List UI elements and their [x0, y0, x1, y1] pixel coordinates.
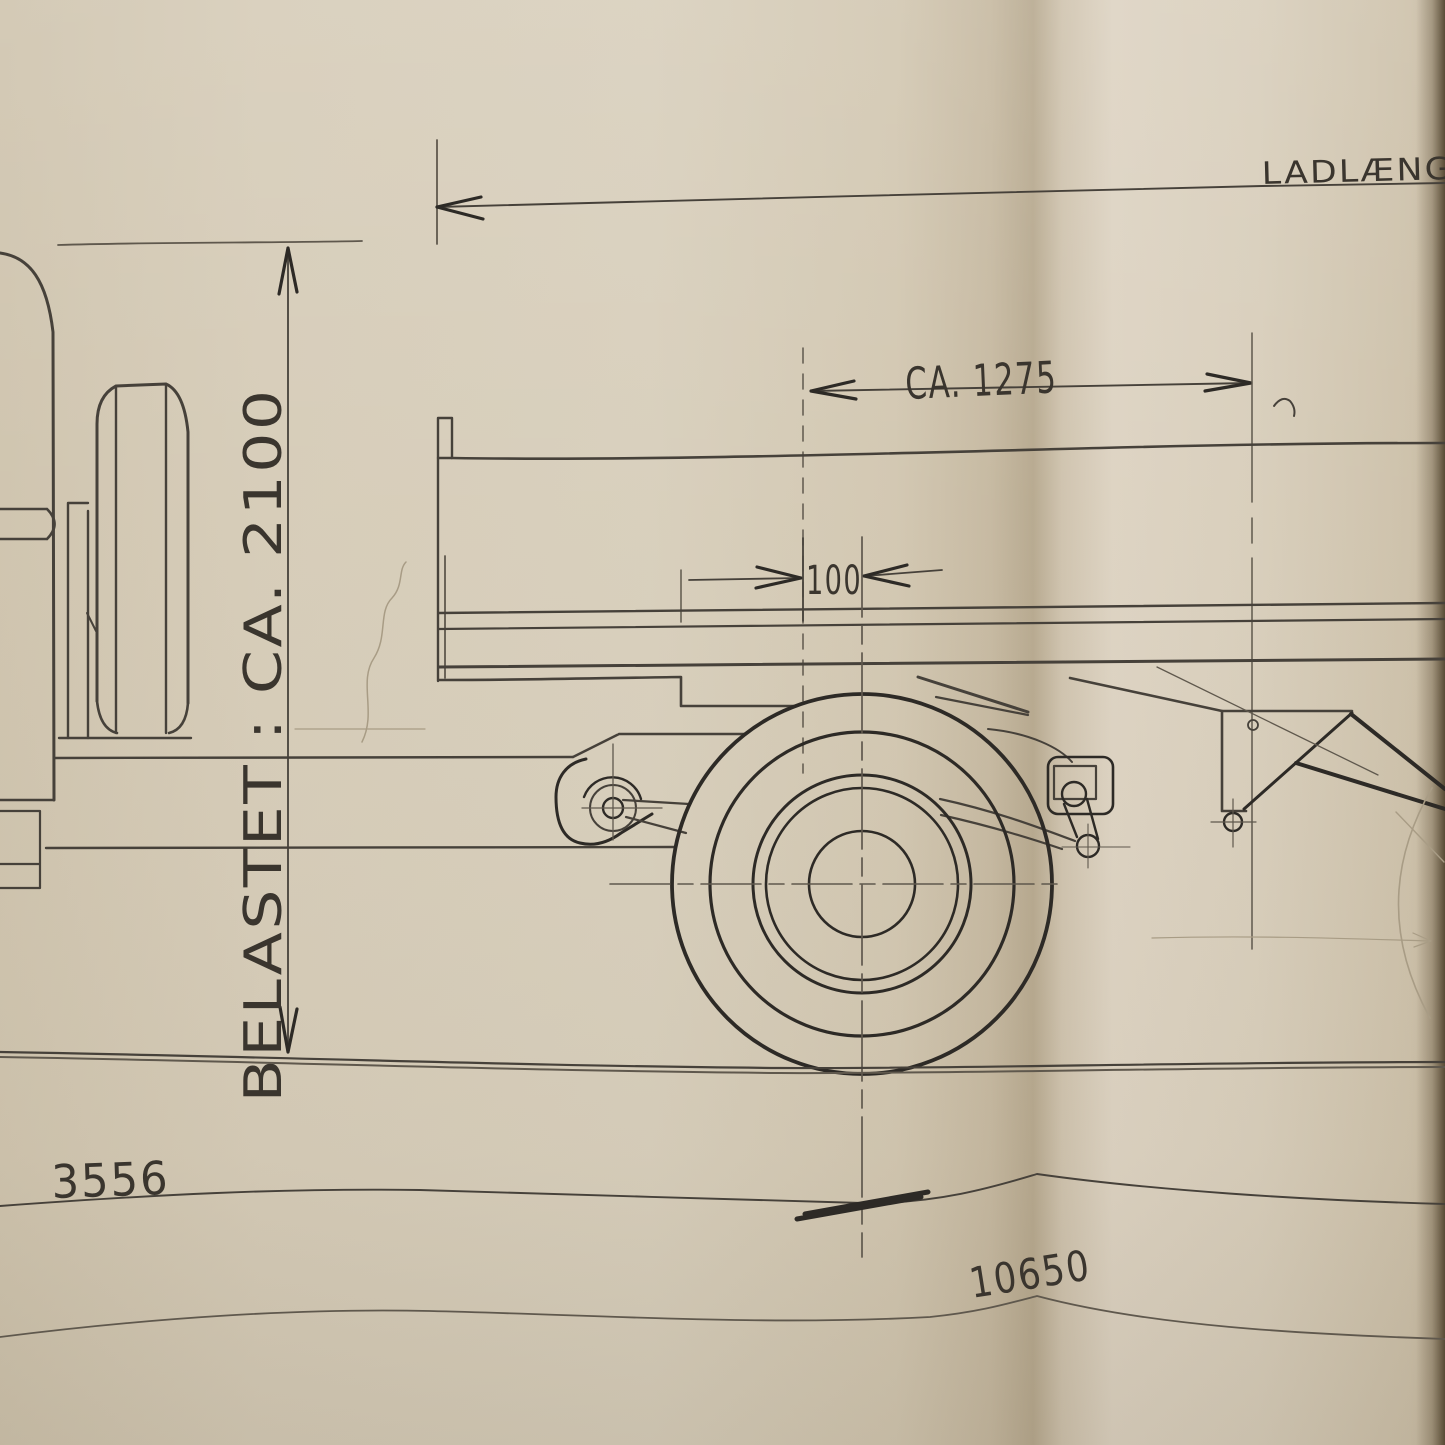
- offset-dim-label: 100: [806, 558, 862, 604]
- paper-background: [0, 0, 1445, 1445]
- page-edge-shadow: [1416, 0, 1445, 1445]
- left-length-label: 3556: [50, 1151, 170, 1209]
- frame-rail-top: [55, 757, 573, 758]
- frame-rail-bottom: [46, 847, 676, 848]
- load-length-label: LADLÆNG: [1261, 151, 1445, 192]
- loaded-height-label: BELASTET : CA. 2100: [234, 388, 294, 1103]
- drawing-canvas: LADLÆNG BELASTET : CA. 2100 CA. 1275 100: [0, 0, 1445, 1445]
- platform-dim-label: CA. 1275: [904, 352, 1058, 410]
- photographed-technical-drawing: LADLÆNG BELASTET : CA. 2100 CA. 1275 100: [0, 0, 1445, 1445]
